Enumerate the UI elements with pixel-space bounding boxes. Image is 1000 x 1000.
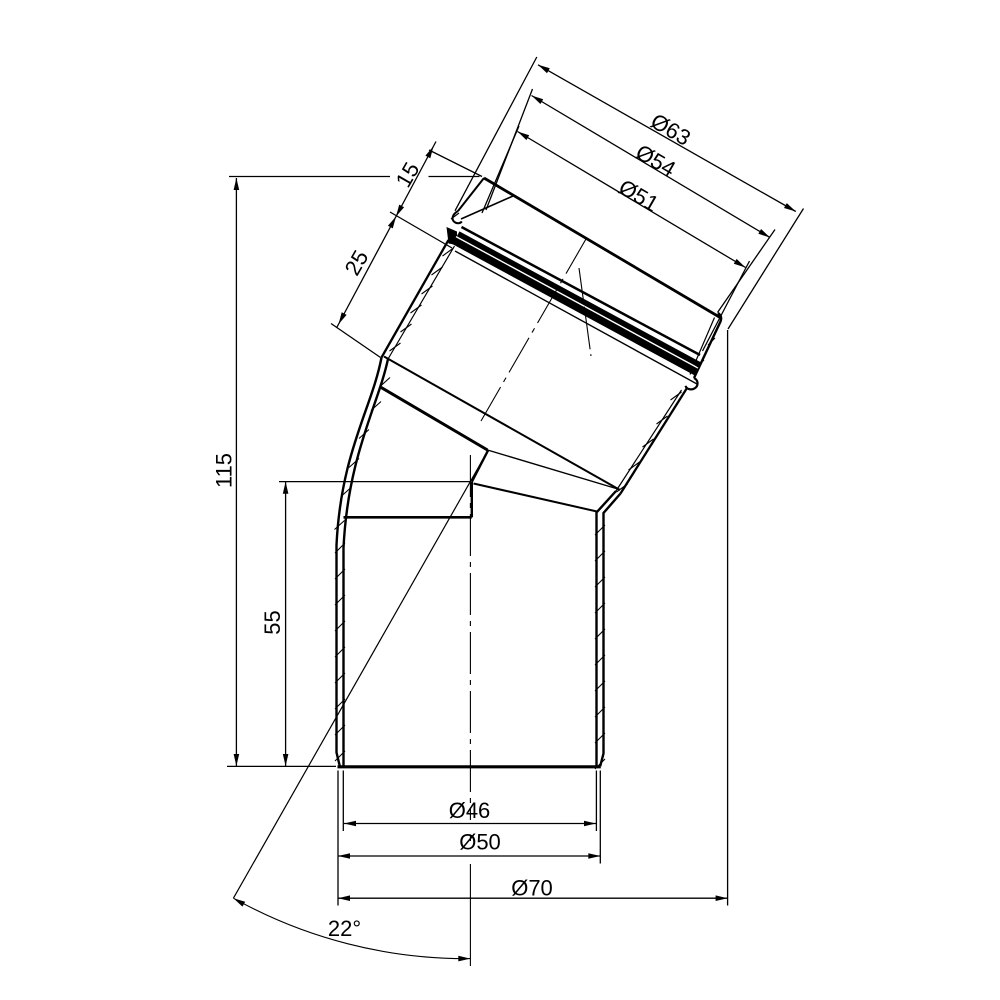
svg-text:55: 55 [260, 610, 285, 634]
svg-text:22°: 22° [328, 916, 361, 941]
svg-text:Ø70: Ø70 [511, 876, 553, 901]
svg-text:115: 115 [212, 453, 237, 488]
svg-text:Ø50: Ø50 [459, 830, 501, 855]
svg-text:Ø46: Ø46 [449, 798, 491, 823]
